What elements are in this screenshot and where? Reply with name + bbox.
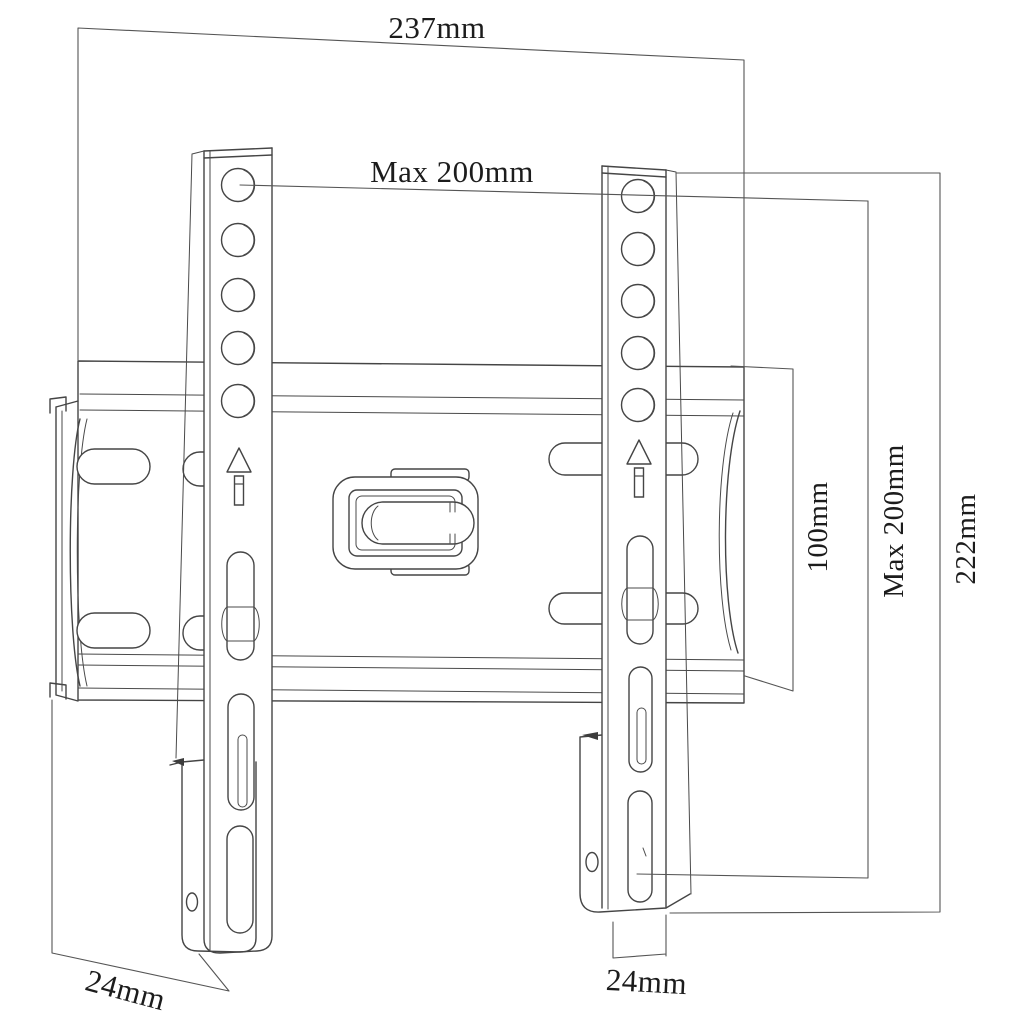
rail-slot [627,536,653,644]
dimension-label: Max 200mm [370,154,534,189]
vesa-hole-icon [222,224,255,257]
vesa-hole-icon [222,332,255,365]
vesa-hole-icon [622,285,655,318]
vesa-hole-icon [622,233,655,266]
vesa-hole-icon [622,389,655,422]
vesa-hole-icon [622,180,655,213]
dimension-label: 24mm [82,962,170,1017]
dimension-label: 100mm [802,481,834,572]
dimension-plate-height: 100mm [731,366,834,691]
wall-mount-diagram: 237mm Max 200mm 100mm Max 200mm 222mm 24… [0,0,1024,1024]
diagram-canvas: 237mm Max 200mm 100mm Max 200mm 222mm 24… [0,0,1024,1024]
foot-screw-hole [187,893,198,911]
dimension-max-hole-width: Max 200mm [240,154,868,201]
dimension-label: Max 200mm [878,444,910,598]
rail-slot [227,552,254,660]
dimension-label: 24mm [605,962,688,1001]
rail-slot [628,791,652,902]
dimension-label: 237mm [388,10,485,45]
rail-slot [629,667,652,772]
dimension-depth-left: 24mm [52,700,229,1017]
foot-screw-hole [586,853,598,872]
vesa-hole-icon [622,337,655,370]
rail-slot [228,694,254,810]
dimension-depth-bottom: 24mm [605,915,688,1001]
vesa-hole-icon [222,385,255,418]
foot-notch [172,758,184,766]
level-indicator [333,469,478,575]
dimension-label: 222mm [950,493,982,584]
vesa-hole-icon [222,279,255,312]
rail-slot [227,826,253,933]
